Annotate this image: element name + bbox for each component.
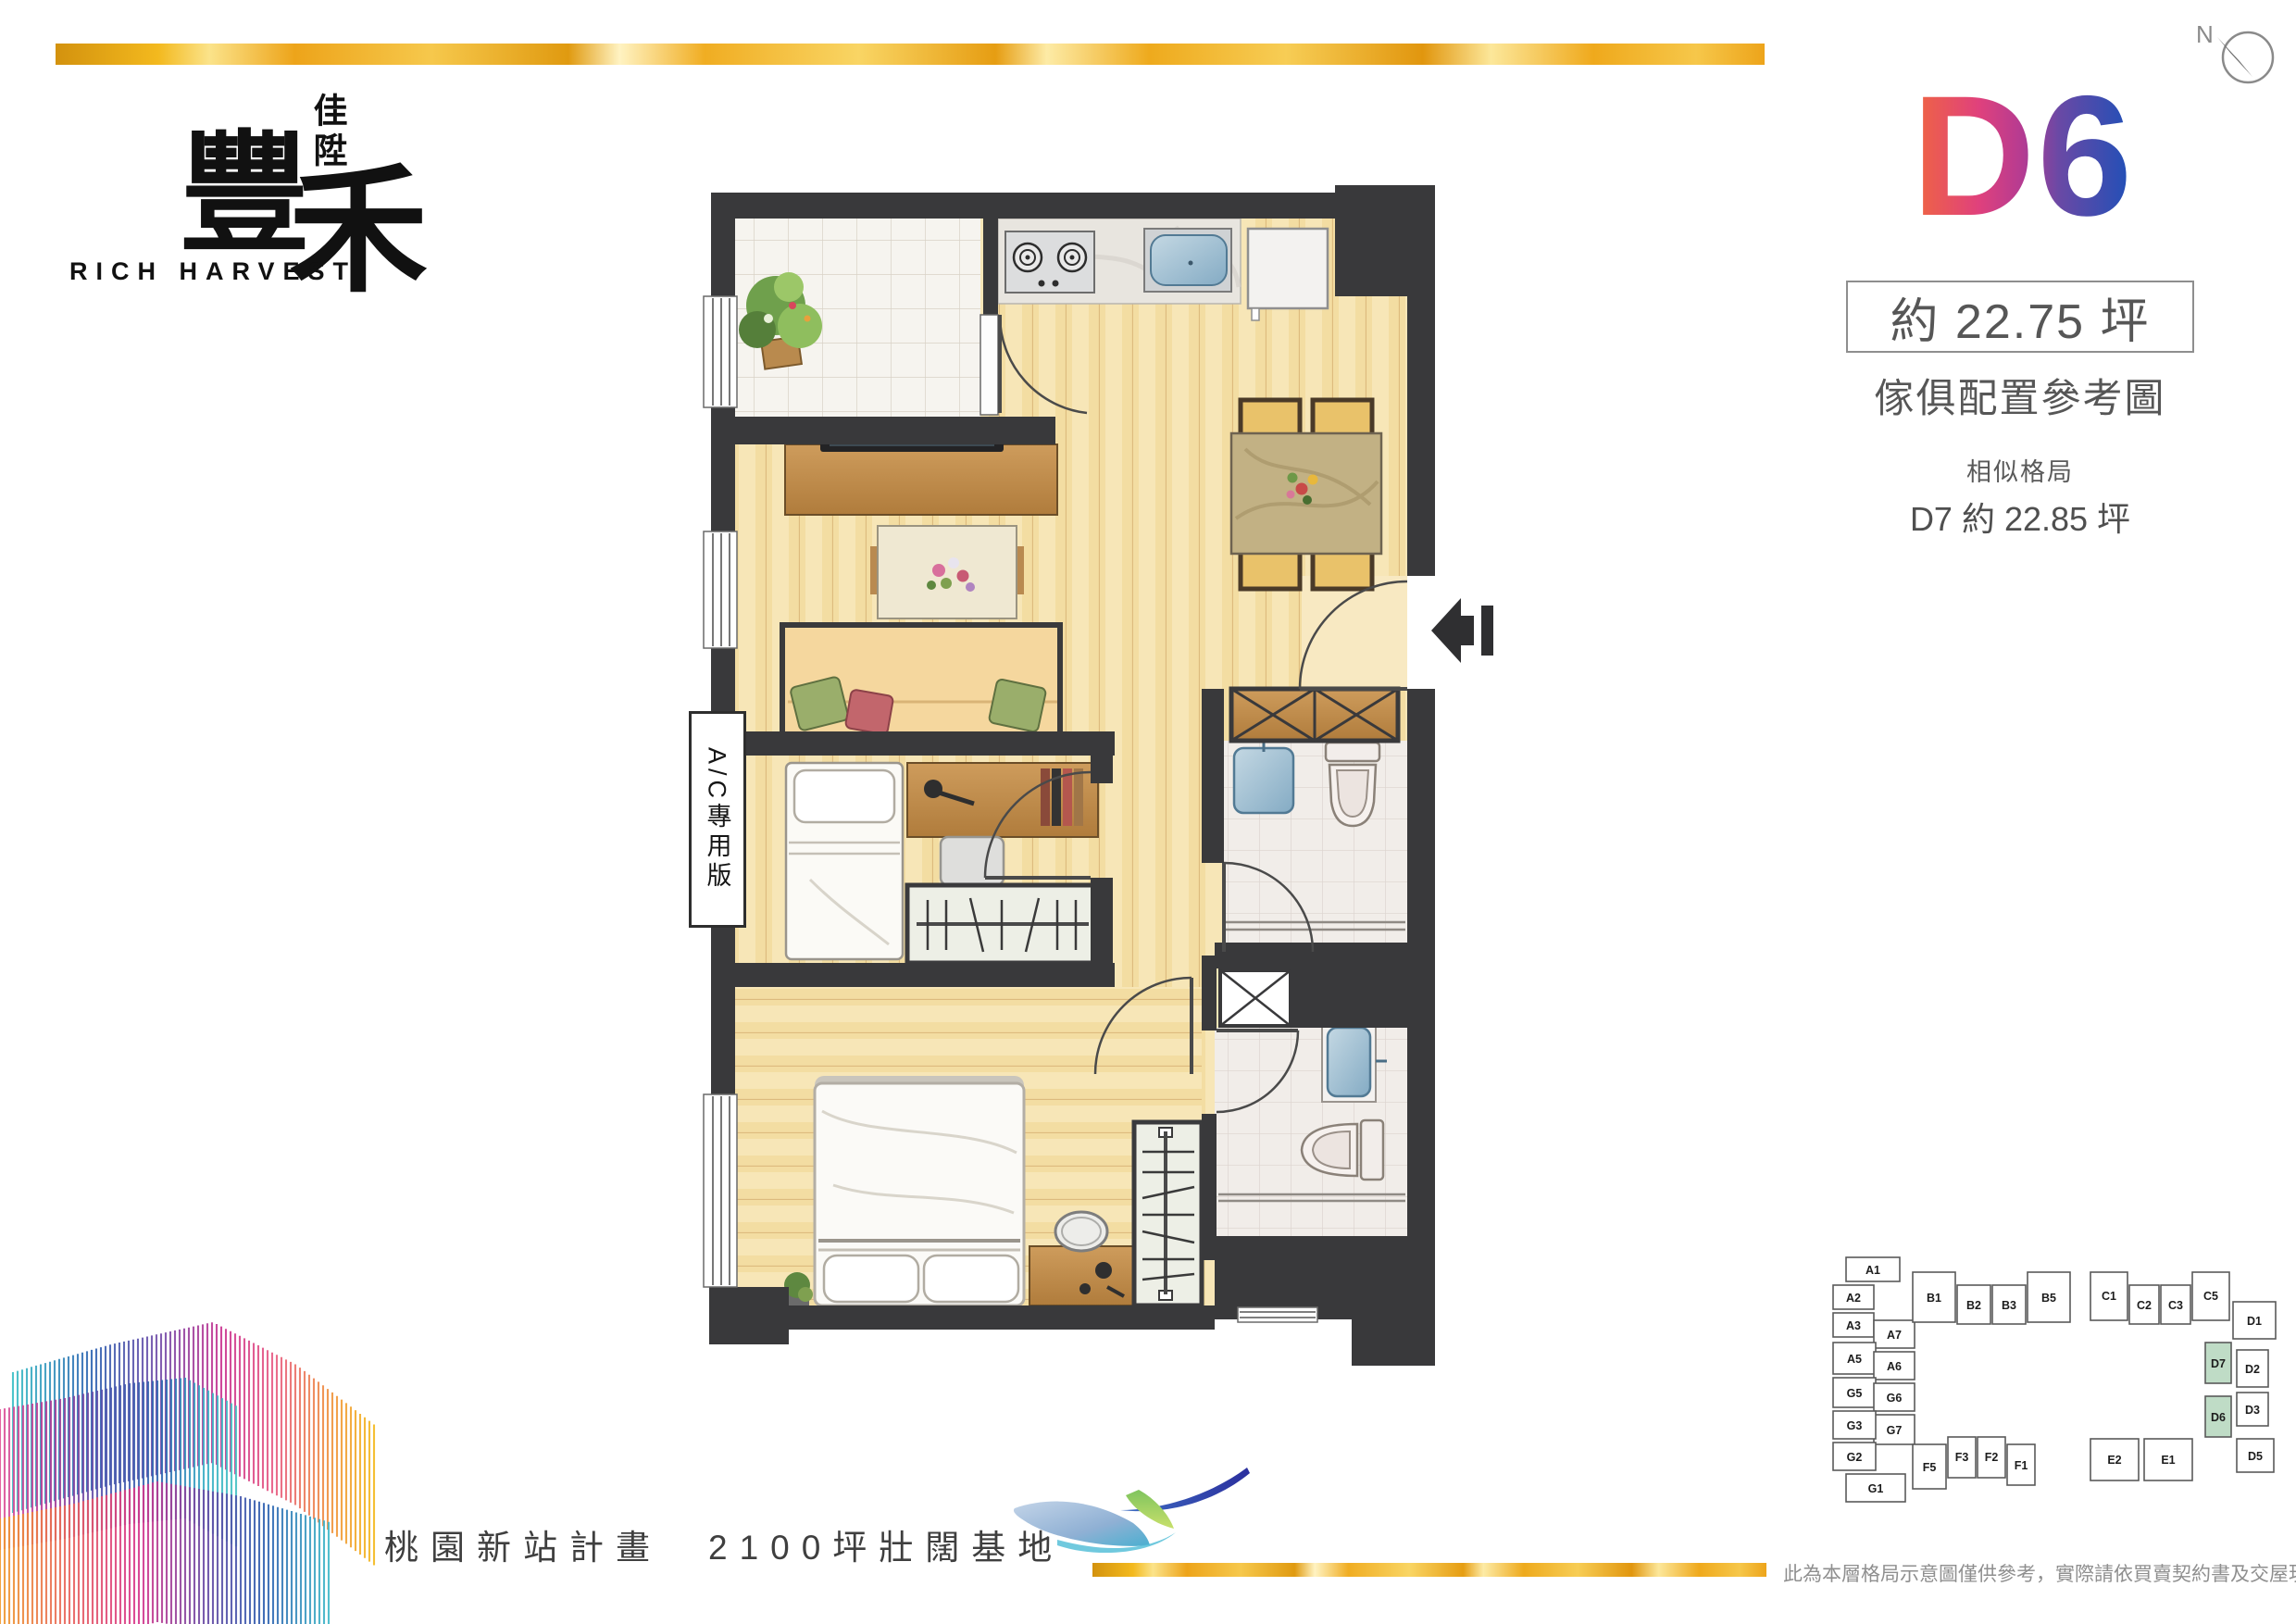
sofa-pillow [989, 679, 1047, 732]
svg-text:A1: A1 [1865, 1264, 1880, 1277]
entry-threshold [1302, 576, 1407, 689]
svg-text:G2: G2 [1847, 1451, 1863, 1464]
brand-swoosh-icon [1002, 1466, 1252, 1558]
svg-text:C1: C1 [2102, 1290, 2116, 1303]
sliding-door [980, 315, 998, 415]
svg-text:A5: A5 [1847, 1353, 1862, 1366]
project-slogan: 桃園新站計畫 2100坪壯闊基地 [384, 1519, 1064, 1569]
svg-text:E1: E1 [2161, 1454, 2175, 1467]
svg-text:G3: G3 [1847, 1419, 1863, 1432]
svg-text:B5: B5 [2041, 1292, 2056, 1305]
kitchen-cabinet [1248, 229, 1328, 308]
svg-text:C2: C2 [2137, 1299, 2152, 1312]
bath1-sink [1234, 748, 1293, 813]
window [704, 531, 737, 648]
keyplan: A1 A2 A3 A7 A5 A6 G5 G6 G7 G3 G2 G1 B1 B… [1826, 1254, 2293, 1531]
pillow [794, 770, 894, 822]
svg-text:C3: C3 [2168, 1299, 2183, 1312]
svg-text:G1: G1 [1868, 1482, 1884, 1495]
sofa-pillow [845, 689, 894, 734]
svg-text:F2: F2 [1985, 1451, 1999, 1464]
svg-text:A6: A6 [1887, 1360, 1902, 1373]
svg-text:D5: D5 [2248, 1450, 2263, 1463]
bath1-toilet [1326, 743, 1379, 826]
window [1238, 1307, 1317, 1322]
poster-page: N 佳陞 豐 禾 RICH HARVEST D6 約 22.75 坪 傢俱配置參… [0, 0, 2296, 1624]
svg-text:F1: F1 [2015, 1459, 2028, 1472]
svg-text:C5: C5 [2203, 1290, 2218, 1303]
svg-text:A2: A2 [1846, 1292, 1861, 1305]
bedroom2-wardrobe [907, 885, 1098, 963]
window [704, 296, 737, 407]
svg-text:A3: A3 [1846, 1319, 1861, 1332]
svg-text:D3: D3 [2245, 1404, 2260, 1417]
pillow [924, 1255, 1018, 1302]
svg-text:D7: D7 [2211, 1357, 2226, 1370]
pillow [824, 1255, 918, 1302]
coffee-table [870, 526, 1024, 618]
svg-text:E2: E2 [2107, 1454, 2121, 1467]
ac-label-box: A/C專用版 [689, 711, 746, 928]
svg-text:F5: F5 [1923, 1461, 1937, 1474]
disclaimer-text: 此為本層格局示意圖僅供參考，實際請依買賣契約書及交屋現況為準。 [1783, 1559, 2296, 1587]
svg-text:A7: A7 [1887, 1329, 1902, 1342]
decorative-waves [0, 1291, 398, 1624]
svg-text:B1: B1 [1927, 1292, 1941, 1305]
svg-text:G5: G5 [1847, 1387, 1863, 1400]
entry-arrow-icon [1431, 598, 1493, 663]
svg-text:G6: G6 [1887, 1392, 1903, 1405]
svg-text:D2: D2 [2245, 1363, 2260, 1376]
dresser-mirror [1055, 1212, 1107, 1251]
bottom-gold-bar [1092, 1563, 1766, 1577]
master-wardrobe [1134, 1122, 1202, 1305]
bath2-sink [1328, 1028, 1370, 1096]
window [704, 1094, 737, 1287]
sofa [782, 625, 1060, 735]
svg-text:B3: B3 [2002, 1299, 2016, 1312]
svg-text:F3: F3 [1955, 1451, 1969, 1464]
dresser [1029, 1246, 1137, 1305]
svg-text:D6: D6 [2211, 1411, 2226, 1424]
shoe-cabinet [1231, 689, 1398, 741]
svg-text:B2: B2 [1966, 1299, 1981, 1312]
svg-text:G7: G7 [1887, 1424, 1903, 1437]
svg-text:D1: D1 [2247, 1315, 2262, 1328]
desk-lamp [924, 780, 942, 798]
